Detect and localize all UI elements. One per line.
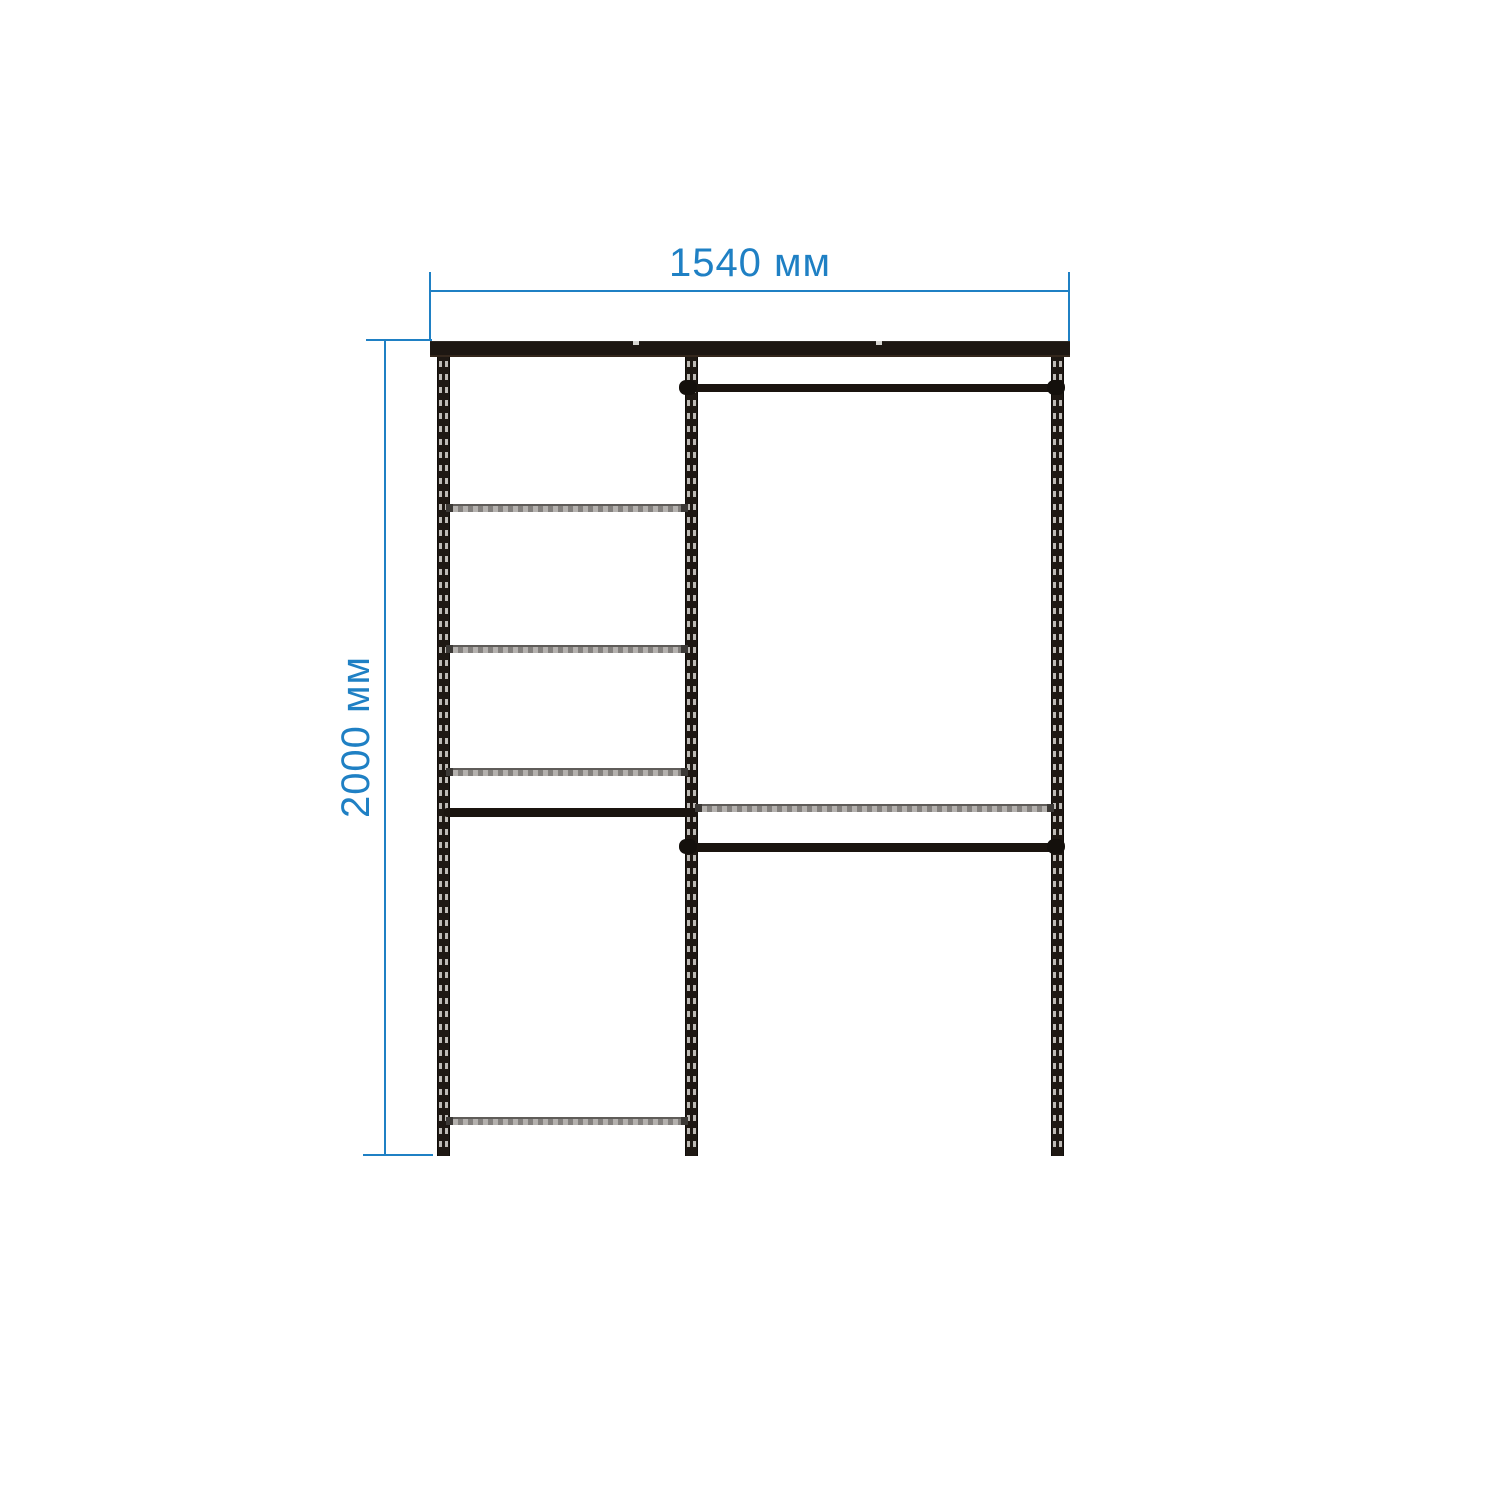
right-hang-rod-bottom [688,843,1062,852]
width-dimension-tick-right [1068,272,1070,341]
height-dimension-tick-top [366,339,432,341]
upright-center [685,357,698,1156]
rod-end-cap [679,839,697,854]
left-shelf-2 [448,645,686,653]
left-shelf-3 [448,768,686,776]
rod-end-cap [1047,839,1065,854]
left-shelf-1 [448,504,686,512]
rail-seam [633,341,639,345]
width-dimension-line [430,290,1070,292]
height-dimension-label: 2000 мм [336,656,376,818]
width-dimension-tick-left [429,272,431,341]
rod-end-cap [679,380,697,395]
wardrobe-dimension-diagram: 1540 мм 2000 мм [0,0,1496,1496]
top-rail [430,341,1070,357]
right-hang-rod-top [688,384,1062,392]
left-shelf-4 [448,1117,686,1125]
left-hang-bar [444,808,698,817]
height-dimension-tick-bottom [363,1154,433,1156]
upright-left [437,357,450,1156]
right-shelf [697,804,1052,812]
rod-end-cap [1047,380,1065,395]
width-dimension-label: 1540 мм [669,243,831,283]
upright-right [1051,357,1064,1156]
rail-seam [876,341,882,345]
height-dimension-line [384,340,386,1156]
